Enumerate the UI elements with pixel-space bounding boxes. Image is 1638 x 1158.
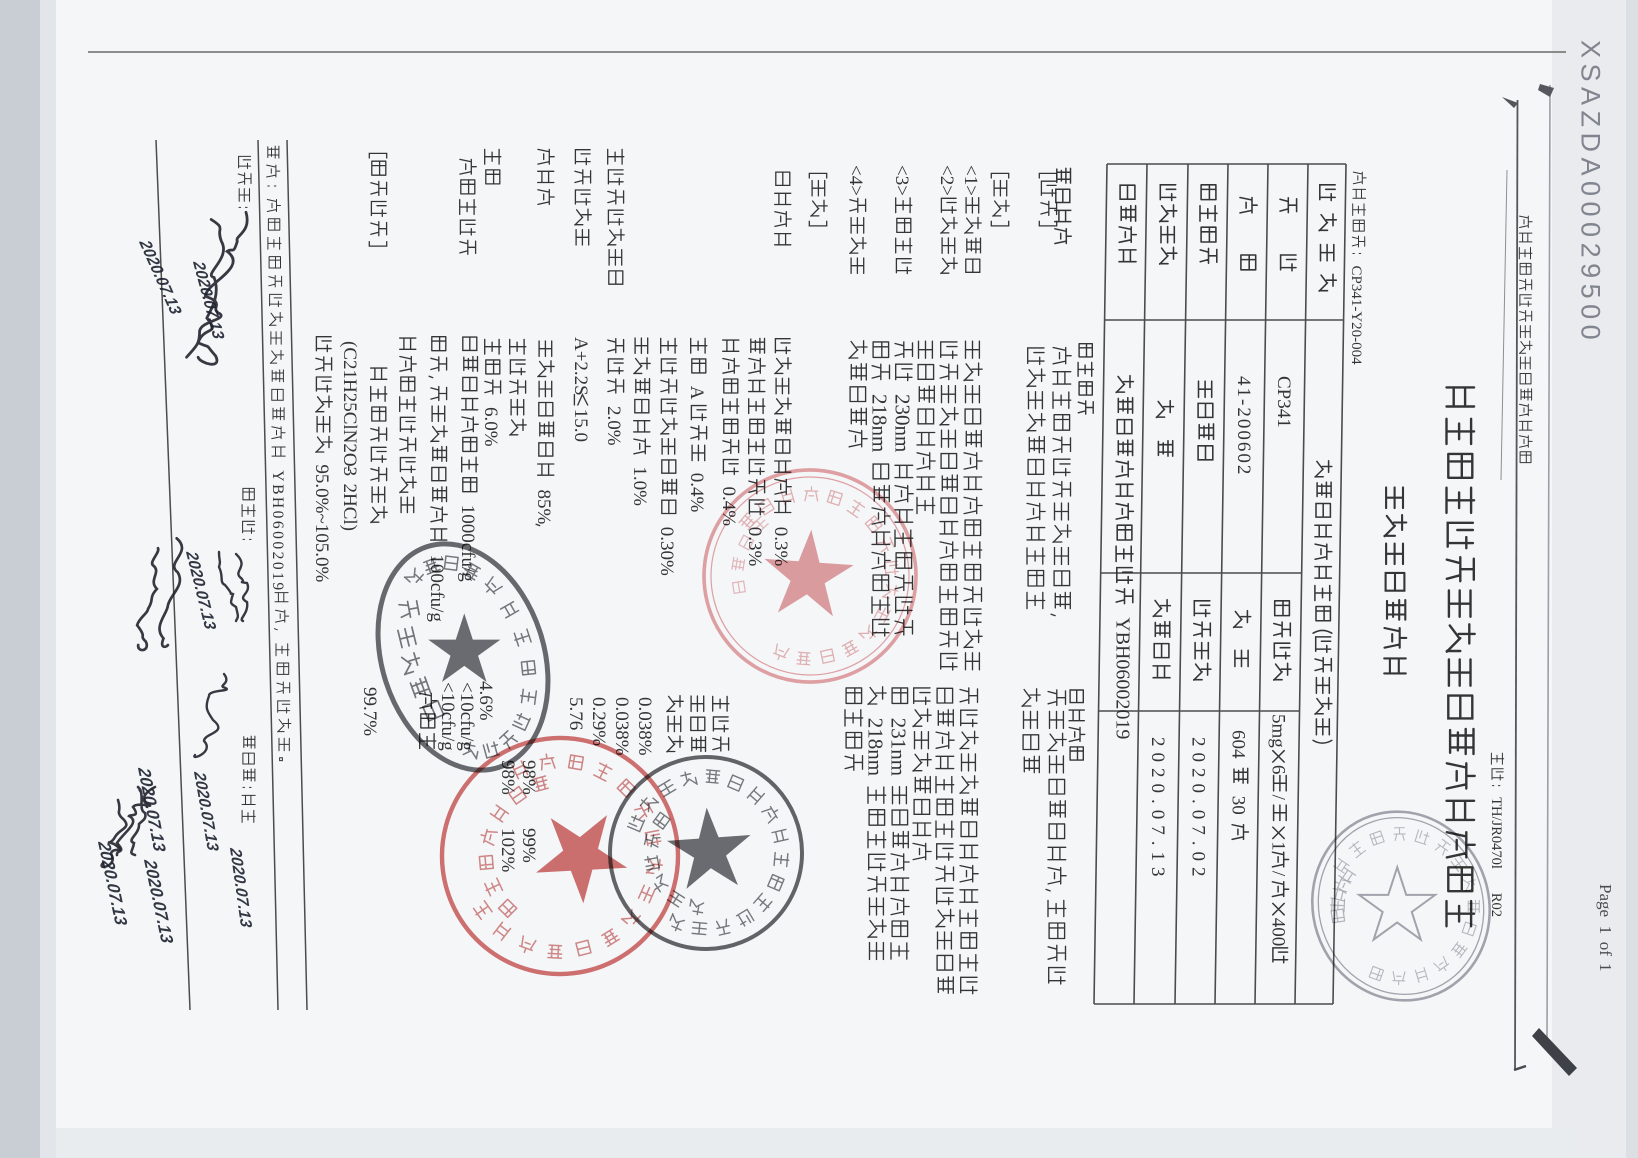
svg-text:/: / xyxy=(1268,795,1289,801)
svg-text:2.0%: 2.0% xyxy=(603,406,624,446)
svg-text:<2>: <2> xyxy=(936,165,957,196)
svg-text:4.6%: 4.6% xyxy=(475,681,496,721)
svg-text:0.30%: 0.30% xyxy=(656,527,677,576)
svg-text:<3>: <3> xyxy=(891,165,912,196)
svg-text:2020.07.02: 2020.07.02 xyxy=(1187,737,1208,883)
svg-text:400: 400 xyxy=(1268,918,1289,947)
svg-text:230nm: 230nm xyxy=(890,394,914,452)
svg-text:5.76: 5.76 xyxy=(565,697,586,730)
svg-text:99%: 99% xyxy=(518,828,539,863)
svg-text:30: 30 xyxy=(1227,796,1248,815)
svg-text:0.038%: 0.038% xyxy=(611,697,632,756)
svg-text:YBH06002019: YBH06002019 xyxy=(1112,617,1134,739)
svg-text:0.4%: 0.4% xyxy=(686,473,707,513)
svg-text:<4>: <4> xyxy=(845,165,866,196)
svg-text:85%: 85% xyxy=(533,490,554,525)
svg-text:6.0%: 6.0% xyxy=(480,407,501,447)
svg-text:1.0%: 1.0% xyxy=(629,466,650,506)
svg-text:218nm: 218nm xyxy=(867,394,891,452)
svg-text:A: A xyxy=(686,386,707,400)
svg-text:604: 604 xyxy=(1227,730,1248,759)
svg-text:of: of xyxy=(1596,942,1615,957)
svg-text:102%: 102% xyxy=(497,828,518,873)
svg-text:0.038%: 0.038% xyxy=(634,697,655,756)
svg-text:2020.07.13: 2020.07.13 xyxy=(1147,737,1168,883)
svg-text:(C21H25ClN2O3: (C21H25ClN2O3 xyxy=(339,341,360,476)
svg-text:1: 1 xyxy=(1596,963,1615,972)
svg-text:1: 1 xyxy=(1268,841,1289,851)
svg-text:218nm: 218nm xyxy=(863,718,887,776)
svg-text:95.0%~105.0%: 95.0%~105.0% xyxy=(311,464,332,582)
svg-text:2HCl): 2HCl) xyxy=(339,484,360,532)
svg-text:-: - xyxy=(339,465,360,471)
svg-text:/: / xyxy=(1268,871,1289,877)
svg-text:CP341-Y20-004: CP341-Y20-004 xyxy=(1348,266,1364,366)
svg-text:99.7%: 99.7% xyxy=(359,687,380,736)
svg-text:1: 1 xyxy=(1596,926,1615,935)
svg-text:TH/JR0470l: TH/JR0470l xyxy=(1488,797,1504,869)
svg-text:Page: Page xyxy=(1596,884,1615,917)
svg-text:XSAZDA00029500: XSAZDA00029500 xyxy=(1575,40,1605,345)
svg-text:YBH06002019: YBH06002019 xyxy=(269,470,286,592)
svg-text:<1>: <1> xyxy=(960,165,981,196)
svg-text:A+2.2S: A+2.2S xyxy=(570,337,591,396)
svg-text:231nm: 231nm xyxy=(886,718,910,776)
svg-text:15.0: 15.0 xyxy=(570,409,591,442)
svg-text:41-200602: 41-200602 xyxy=(1233,376,1254,476)
svg-text:0.3%: 0.3% xyxy=(744,527,765,567)
svg-text:6: 6 xyxy=(1268,765,1289,775)
svg-text:CP341: CP341 xyxy=(1273,376,1294,428)
svg-text:0.29%: 0.29% xyxy=(588,697,609,746)
svg-text:5mg: 5mg xyxy=(1268,714,1289,748)
svg-text:<10cfu/g: <10cfu/g xyxy=(456,682,477,751)
